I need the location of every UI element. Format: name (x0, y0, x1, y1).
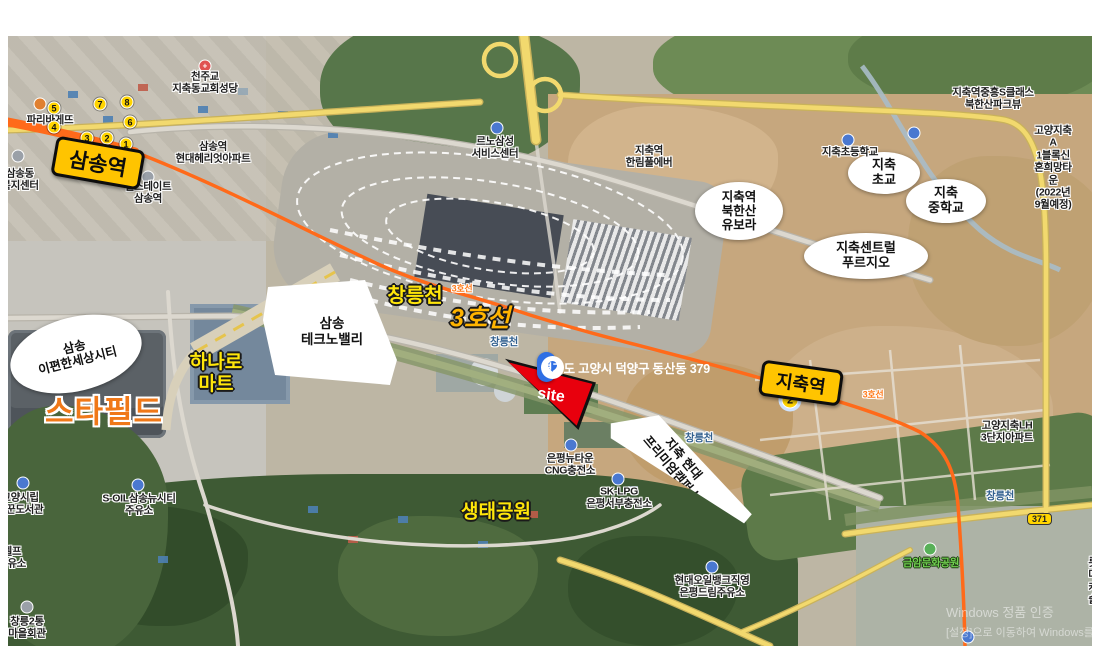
poi-label-lotte: 롯데캐슬 (1088, 556, 1092, 606)
poi-label-line3: 3호선 (863, 390, 884, 401)
poi-label-line3: 3호선 (452, 284, 473, 295)
poi-label-park: 금암문화공원 (903, 557, 959, 569)
exit-badge: 8 (121, 96, 134, 109)
exit-badge: 4 (48, 121, 61, 134)
watermark-line1: Windows 정품 인증 (946, 602, 1054, 621)
poi-label-newtown-a: 고양지축A 1블록신혼희망타운 (2022년9월예정) (1034, 125, 1073, 212)
label-hanaro-mart: 하나로 마트 (190, 352, 242, 396)
poi-label-welfare: 삼송동 복지센터 (8, 168, 39, 193)
poi-label-library: 고양시립 꿈꾼도서관 (8, 492, 43, 517)
road-badge-371: 371 (1027, 513, 1052, 525)
poi-label-oilbank: 현대오일뱅크직영 은평드림주유소 (675, 575, 750, 600)
poi-label-stream: 창릉천 (986, 490, 1014, 502)
poi-label-sklpg: SK-LPG 은평서부충전소 (586, 486, 652, 511)
gas-station-icon (706, 561, 719, 574)
poi-label-stream: 창릉천 (685, 432, 713, 444)
poi-label-elementary: 지축초등학교 (822, 146, 878, 158)
gas-station-icon (612, 473, 625, 486)
satellite-map[interactable]: 삼송 테크노밸리 지축 현대 프리미엄캠퍼스 삼송 이편한세상시티 지축역 북한… (8, 36, 1092, 646)
poi-label-stream: 창릉천 (490, 336, 518, 348)
park-icon (924, 543, 937, 556)
school-icon (908, 127, 921, 140)
library-icon (17, 477, 30, 490)
address-callout[interactable]: 경기도 고양시 덕양구 동산동 379 (537, 352, 556, 382)
callout-chogyo: 지축 초교 (848, 152, 920, 194)
technovalley-label: 삼송 테크노밸리 (301, 316, 363, 348)
poi-label-heriot-apt: 삼송역 현대헤리엇아파트 (176, 141, 251, 166)
callout-yubora: 지축역 북한산 유보라 (695, 182, 783, 240)
poi-label-cng: 은평뉴타운 CNG충전소 (545, 453, 596, 478)
poi-label-selfgas: 셀프 주유소 (8, 546, 26, 571)
poi-label-service-center: 르노삼성 서비스센터 (472, 136, 519, 161)
address-text: 경기도 고양시 덕양구 동산동 379 (541, 358, 710, 377)
watermark-line2: [설정]으로 이동하여 Windows를 정품 인증합니다. (946, 624, 1092, 640)
exit-badge: 6 (124, 116, 137, 129)
poi-label-lh3: 고양지축LH 3단지아파트 (981, 420, 1033, 445)
exit-badge: 5 (48, 102, 61, 115)
poi-label-sclass: 지축역중흥S클래스 북한산파크뷰 (952, 87, 1034, 112)
bus-cng-icon (565, 439, 578, 452)
school-icon (842, 134, 855, 147)
poi-label-hanlim: 지축역 한림풀에버 (626, 145, 673, 170)
poi-label-village-hall: 창릉2통 마을회관 (8, 616, 45, 641)
poi-label-soil: S-OIL삼송뉴시티 주유소 (102, 493, 175, 518)
label-line3-big: 3호선 (450, 307, 510, 332)
village-hall-icon (21, 601, 34, 614)
label-eco-park: 생태공원 (461, 503, 531, 522)
callout-prugio: 지축센트럴 푸르지오 (804, 233, 928, 279)
poi-label-church: 천주교 지축동교회성당 (172, 71, 238, 96)
label-starfield: 스타필드 (45, 397, 163, 428)
gas-station-icon (132, 479, 145, 492)
callout-junghak: 지축 중학교 (906, 179, 986, 223)
label-changneung-stream: 창릉천 (387, 286, 442, 306)
car-service-icon (491, 122, 504, 135)
bakery-icon (34, 98, 47, 111)
welfare-center-icon (12, 150, 25, 163)
site-label: site (536, 385, 566, 407)
exit-badge: 7 (94, 98, 107, 111)
